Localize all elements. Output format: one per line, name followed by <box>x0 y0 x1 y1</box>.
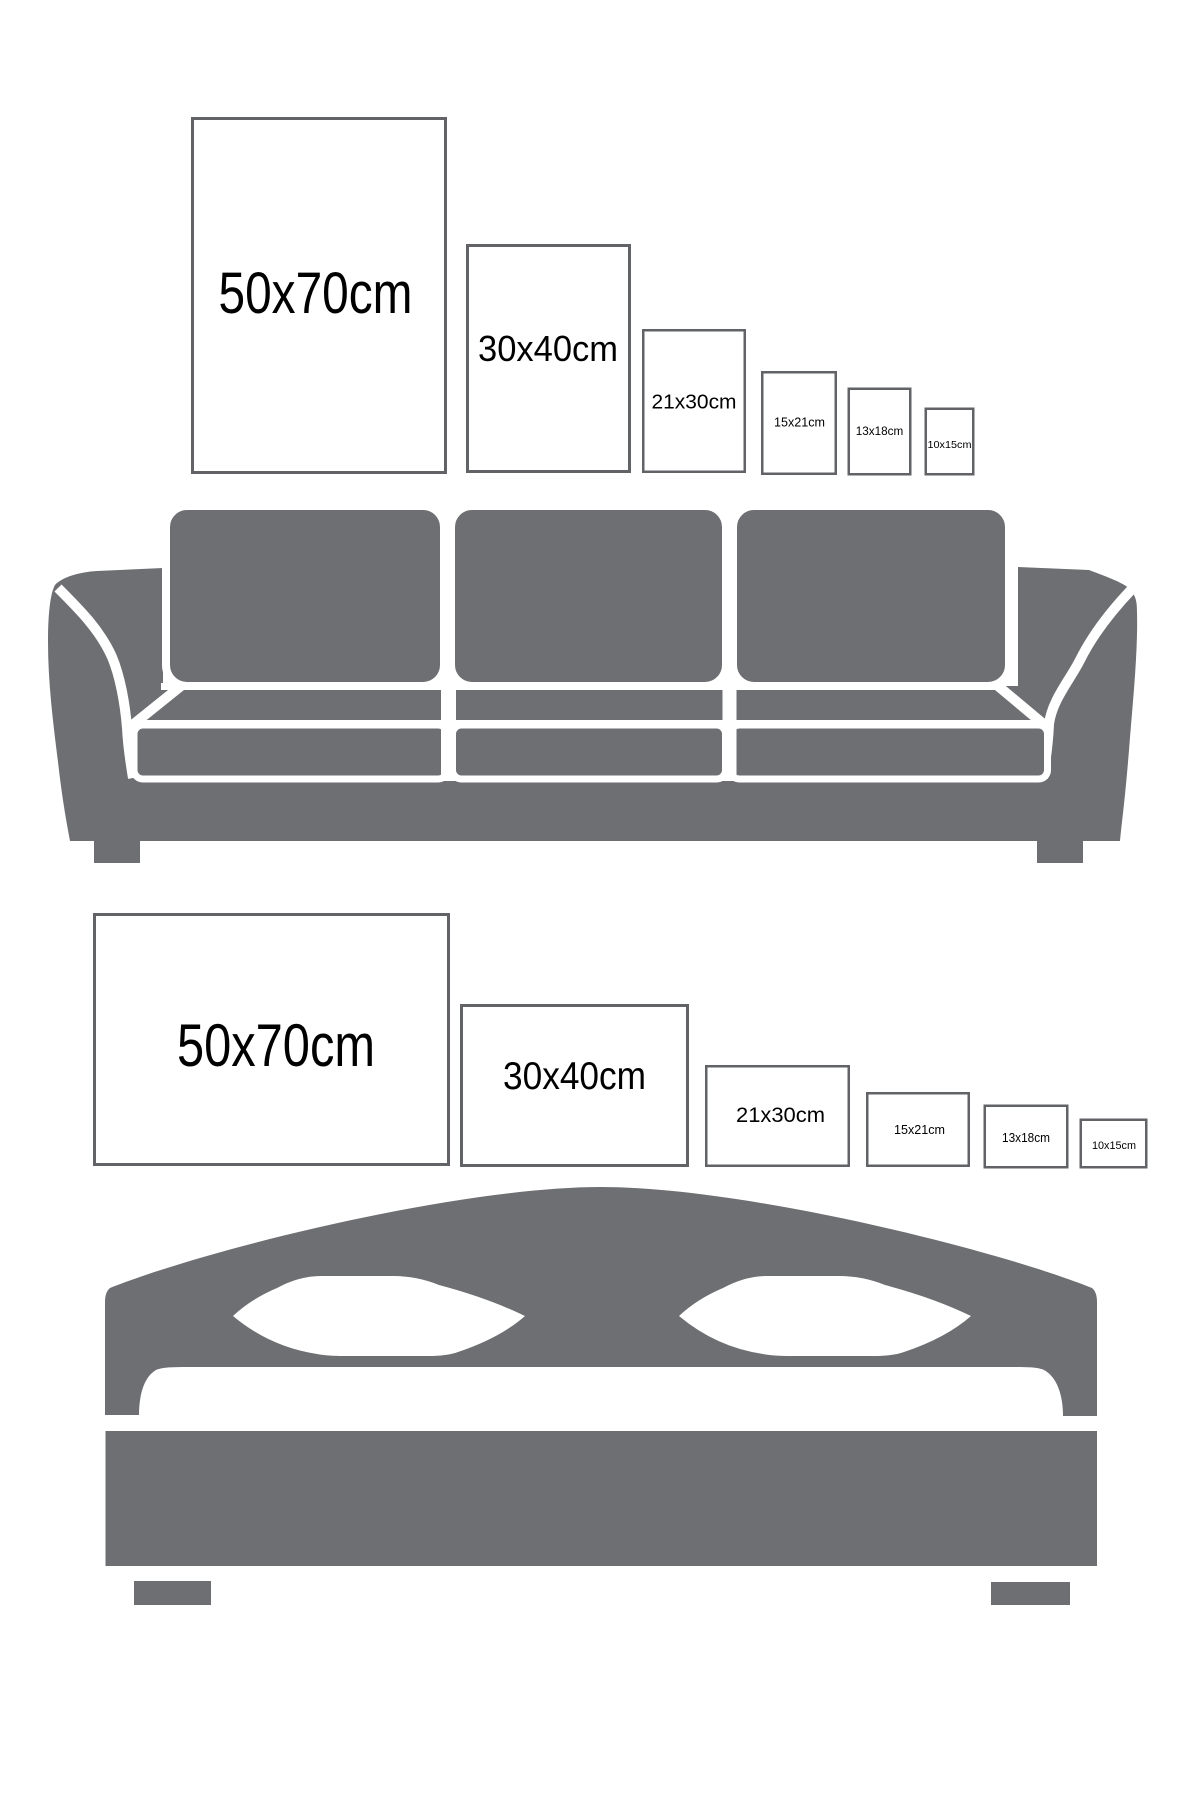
svg-text:21x30cm: 21x30cm <box>736 1104 825 1127</box>
svg-text:10x15cm: 10x15cm <box>928 439 972 451</box>
svg-text:21x30cm: 21x30cm <box>652 391 737 414</box>
svg-text:13x18cm: 13x18cm <box>1002 1131 1050 1145</box>
svg-text:30x40cm: 30x40cm <box>478 328 618 369</box>
svg-text:13x18cm: 13x18cm <box>856 424 904 438</box>
svg-text:15x21cm: 15x21cm <box>774 415 825 430</box>
svg-text:50x70cm: 50x70cm <box>219 261 413 326</box>
svg-text:10x15cm: 10x15cm <box>1092 1140 1136 1152</box>
svg-text:50x70cm: 50x70cm <box>177 1012 375 1079</box>
svg-text:15x21cm: 15x21cm <box>894 1123 945 1137</box>
svg-text:30x40cm: 30x40cm <box>503 1055 646 1098</box>
